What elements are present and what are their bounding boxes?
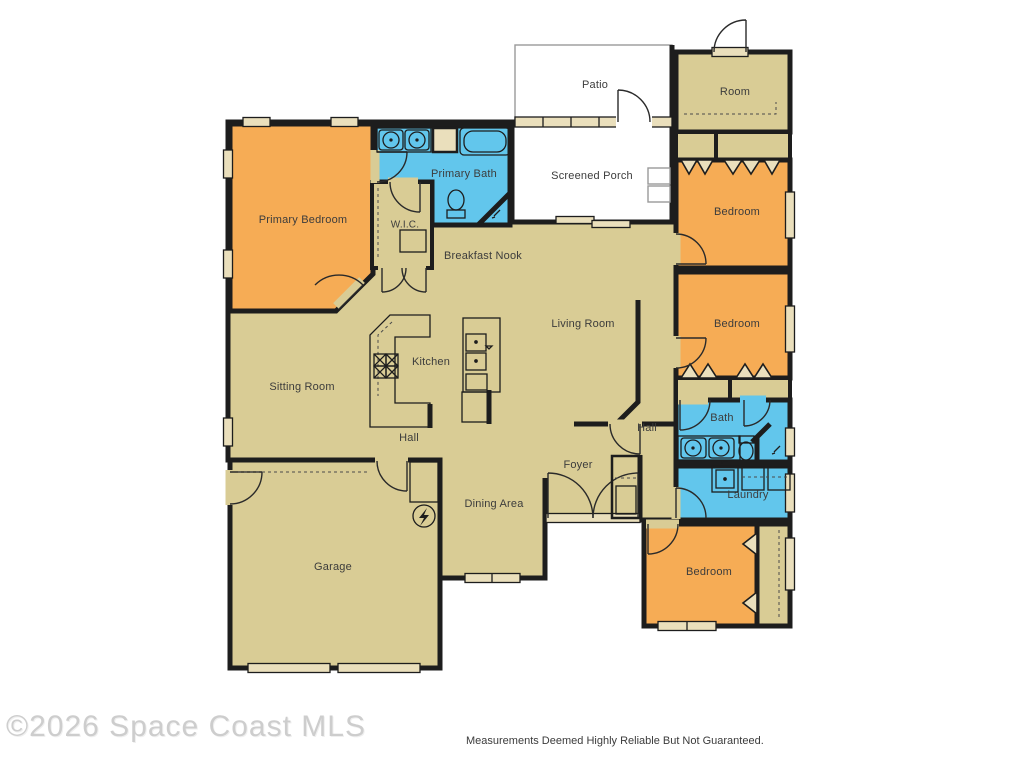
- room-label-breakfast-nook: Breakfast Nook: [444, 250, 522, 262]
- room-entry-threshold: [712, 48, 748, 57]
- outdoor-areas: [512, 45, 672, 222]
- room-label-wic: W.I.C.: [391, 220, 419, 231]
- room-label-laundry: Laundry: [727, 489, 768, 501]
- room-label-foyer: Foyer: [563, 459, 592, 471]
- room-label-hall-left: Hall: [399, 432, 419, 444]
- room-label-kitchen: Kitchen: [412, 356, 450, 368]
- room-label-room: Room: [720, 86, 750, 98]
- room-label-sitting-room: Sitting Room: [269, 381, 334, 393]
- room-label-bedroom-2: Bedroom: [714, 318, 760, 330]
- bath2-area: [676, 400, 790, 462]
- room-label-garage: Garage: [314, 561, 352, 573]
- garage-door-panel: [248, 664, 330, 673]
- closet-strip-a: [676, 132, 790, 160]
- room-label-dining-area: Dining Area: [464, 498, 523, 510]
- room-label-primary-bath: Primary Bath: [431, 168, 497, 180]
- floor-plan: Patio Room Screened Porch Primary Bath P…: [0, 0, 1024, 768]
- room-label-bedroom-3: Bedroom: [686, 566, 732, 578]
- room-label-primary-bedroom: Primary Bedroom: [259, 214, 348, 226]
- mls-watermark: ©2026 Space Coast MLS: [6, 710, 366, 744]
- room-label-living-room: Living Room: [551, 318, 614, 330]
- room-label-patio: Patio: [582, 79, 608, 91]
- linen-closet: [433, 128, 457, 152]
- porch-steps: [648, 168, 670, 184]
- room-label-screened-porch: Screened Porch: [551, 170, 633, 182]
- room-label-hall-right: Hall: [637, 422, 657, 434]
- stove-icon: [374, 354, 398, 378]
- room-label-bath-2: Bath: [710, 412, 733, 424]
- garage-door-panel: [338, 664, 420, 673]
- floor-plan-drawing: [0, 0, 1024, 768]
- room-label-bedroom-1: Bedroom: [714, 206, 760, 218]
- disclaimer-text: Measurements Deemed Highly Reliable But …: [466, 735, 764, 747]
